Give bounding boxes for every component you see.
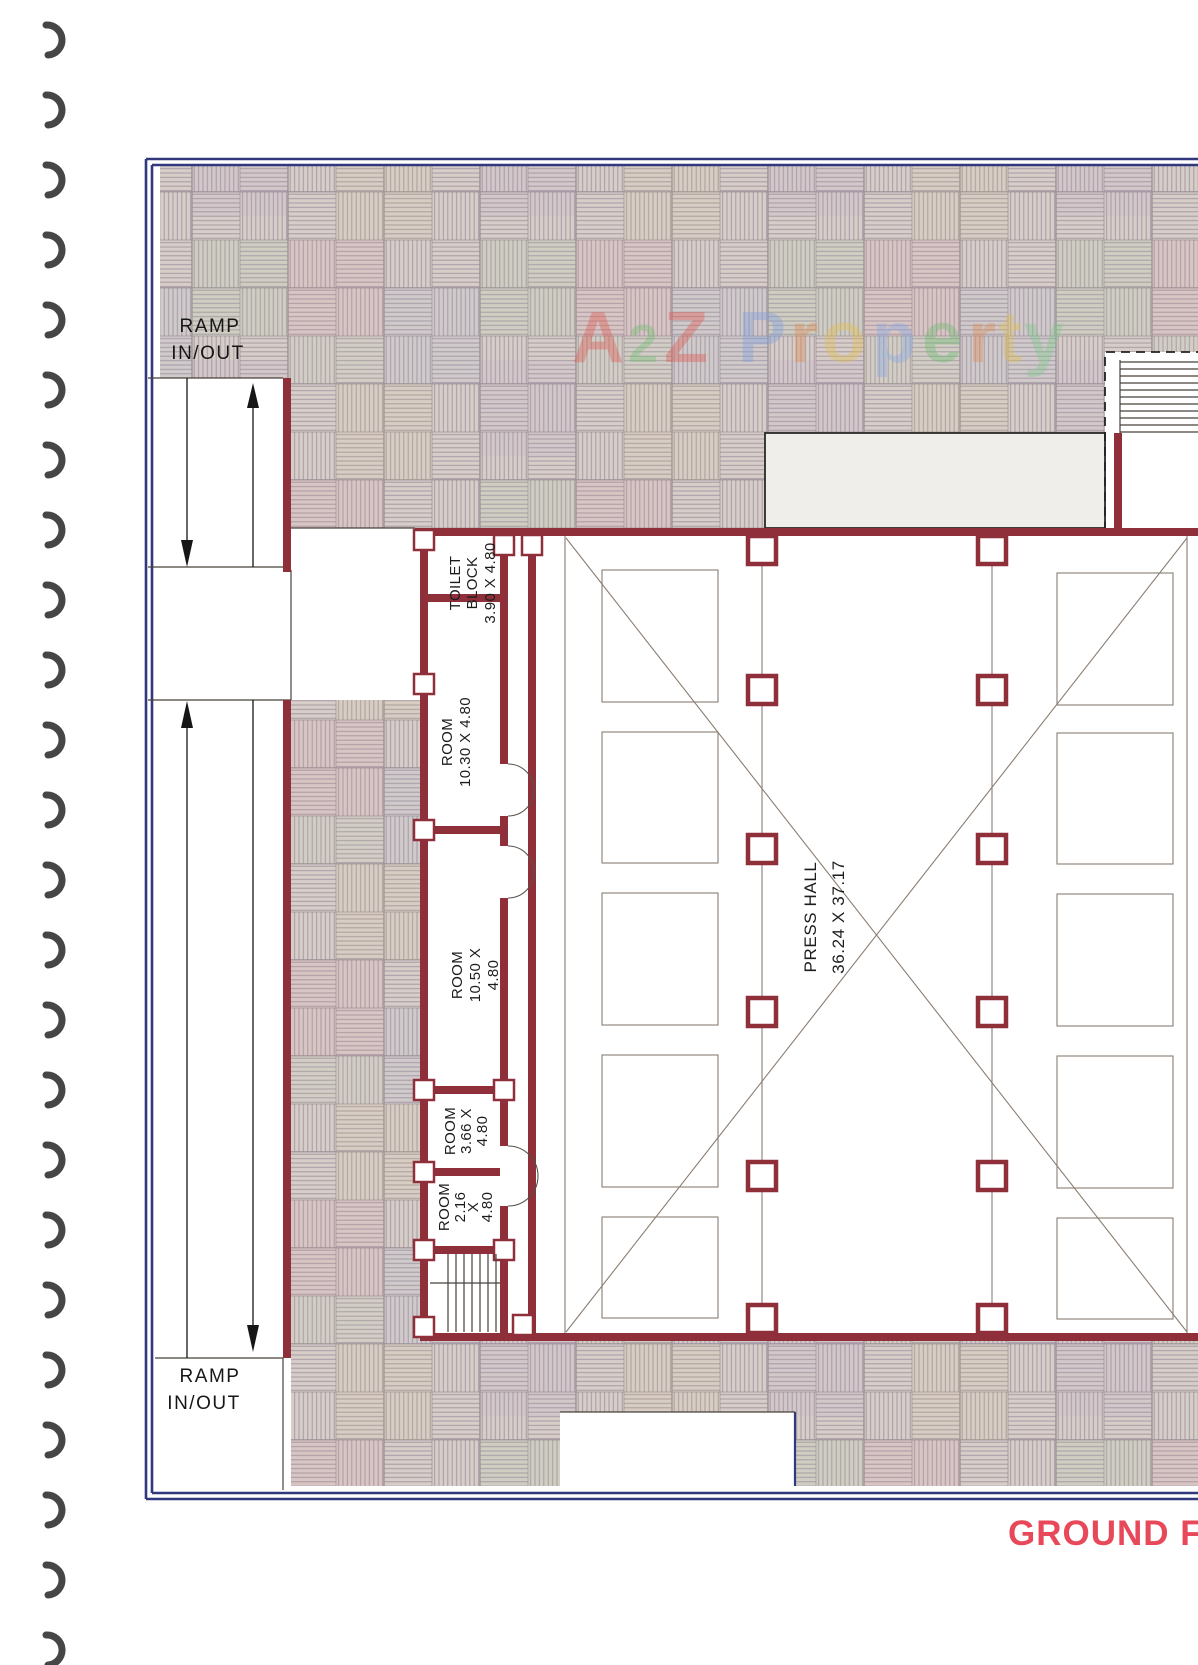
binder-hole [46, 1145, 62, 1175]
binder-hole [46, 235, 62, 265]
binder-hole [46, 1215, 62, 1245]
ramp-bottom-label-line1: RAMP [180, 1366, 241, 1387]
binder-hole [46, 445, 62, 475]
binder-hole [46, 865, 62, 895]
binder-hole [46, 725, 62, 755]
hall-left-wall [528, 528, 536, 1341]
binder-hole [46, 1565, 62, 1595]
spiral-binding-holes [46, 25, 62, 1665]
svg-text:ROOM: ROOM [436, 1183, 453, 1231]
binder-hole [46, 795, 62, 825]
svg-text:PRESS HALL: PRESS HALL [801, 862, 820, 973]
svg-text:4.80: 4.80 [485, 960, 502, 991]
plan-title: GROUND FL [1008, 1514, 1198, 1553]
ramp-top-wall [283, 378, 291, 572]
svg-text:3.66 X: 3.66 X [458, 1108, 475, 1154]
ramp-bottom-wall [283, 700, 291, 1358]
binder-hole [46, 515, 62, 545]
svg-text:ROOM: ROOM [442, 1107, 459, 1155]
svg-text:TOILET: TOILET [447, 556, 464, 611]
svg-text:36.24 X 37.17: 36.24 X 37.17 [829, 860, 848, 974]
svg-text:10.30 X 4.80: 10.30 X 4.80 [457, 697, 474, 787]
binder-hole [46, 1495, 62, 1525]
ramp-top-label-line2: IN/OUT [171, 343, 244, 364]
binder-hole [46, 305, 62, 335]
binder-hole [46, 1355, 62, 1385]
svg-text:4.80: 4.80 [474, 1116, 491, 1147]
svg-text:4.80: 4.80 [479, 1192, 496, 1223]
svg-text:ROOM: ROOM [449, 951, 466, 999]
scanned-floor-plan-page: A2Z Property [0, 0, 1198, 1665]
binder-hole [46, 375, 62, 405]
floor-plan-drawing: A2Z Property [0, 0, 1198, 1665]
binder-hole [46, 935, 62, 965]
svg-text:ROOM: ROOM [439, 718, 456, 766]
ramp-bottom-label-line2: IN/OUT [167, 1393, 240, 1414]
svg-text:3.90 X 4.80: 3.90 X 4.80 [482, 542, 499, 623]
binder-hole [46, 165, 62, 195]
binder-hole [46, 1005, 62, 1035]
svg-text:BLOCK: BLOCK [464, 557, 481, 610]
binder-hole [46, 95, 62, 125]
binder-hole [46, 1425, 62, 1455]
binder-hole [46, 1075, 62, 1105]
rooms-left-wall [420, 528, 428, 1341]
binder-hole [46, 25, 62, 55]
binder-hole [46, 1285, 62, 1315]
bottom-wall [420, 1333, 1198, 1341]
svg-text:10.50 X: 10.50 X [467, 948, 484, 1003]
rooms-right-wall [500, 528, 508, 1341]
porch-slab [765, 433, 1105, 528]
binder-hole [46, 1635, 62, 1665]
binder-hole [46, 585, 62, 615]
binder-hole [46, 655, 62, 685]
ramp-top-label-line1: RAMP [180, 316, 241, 337]
